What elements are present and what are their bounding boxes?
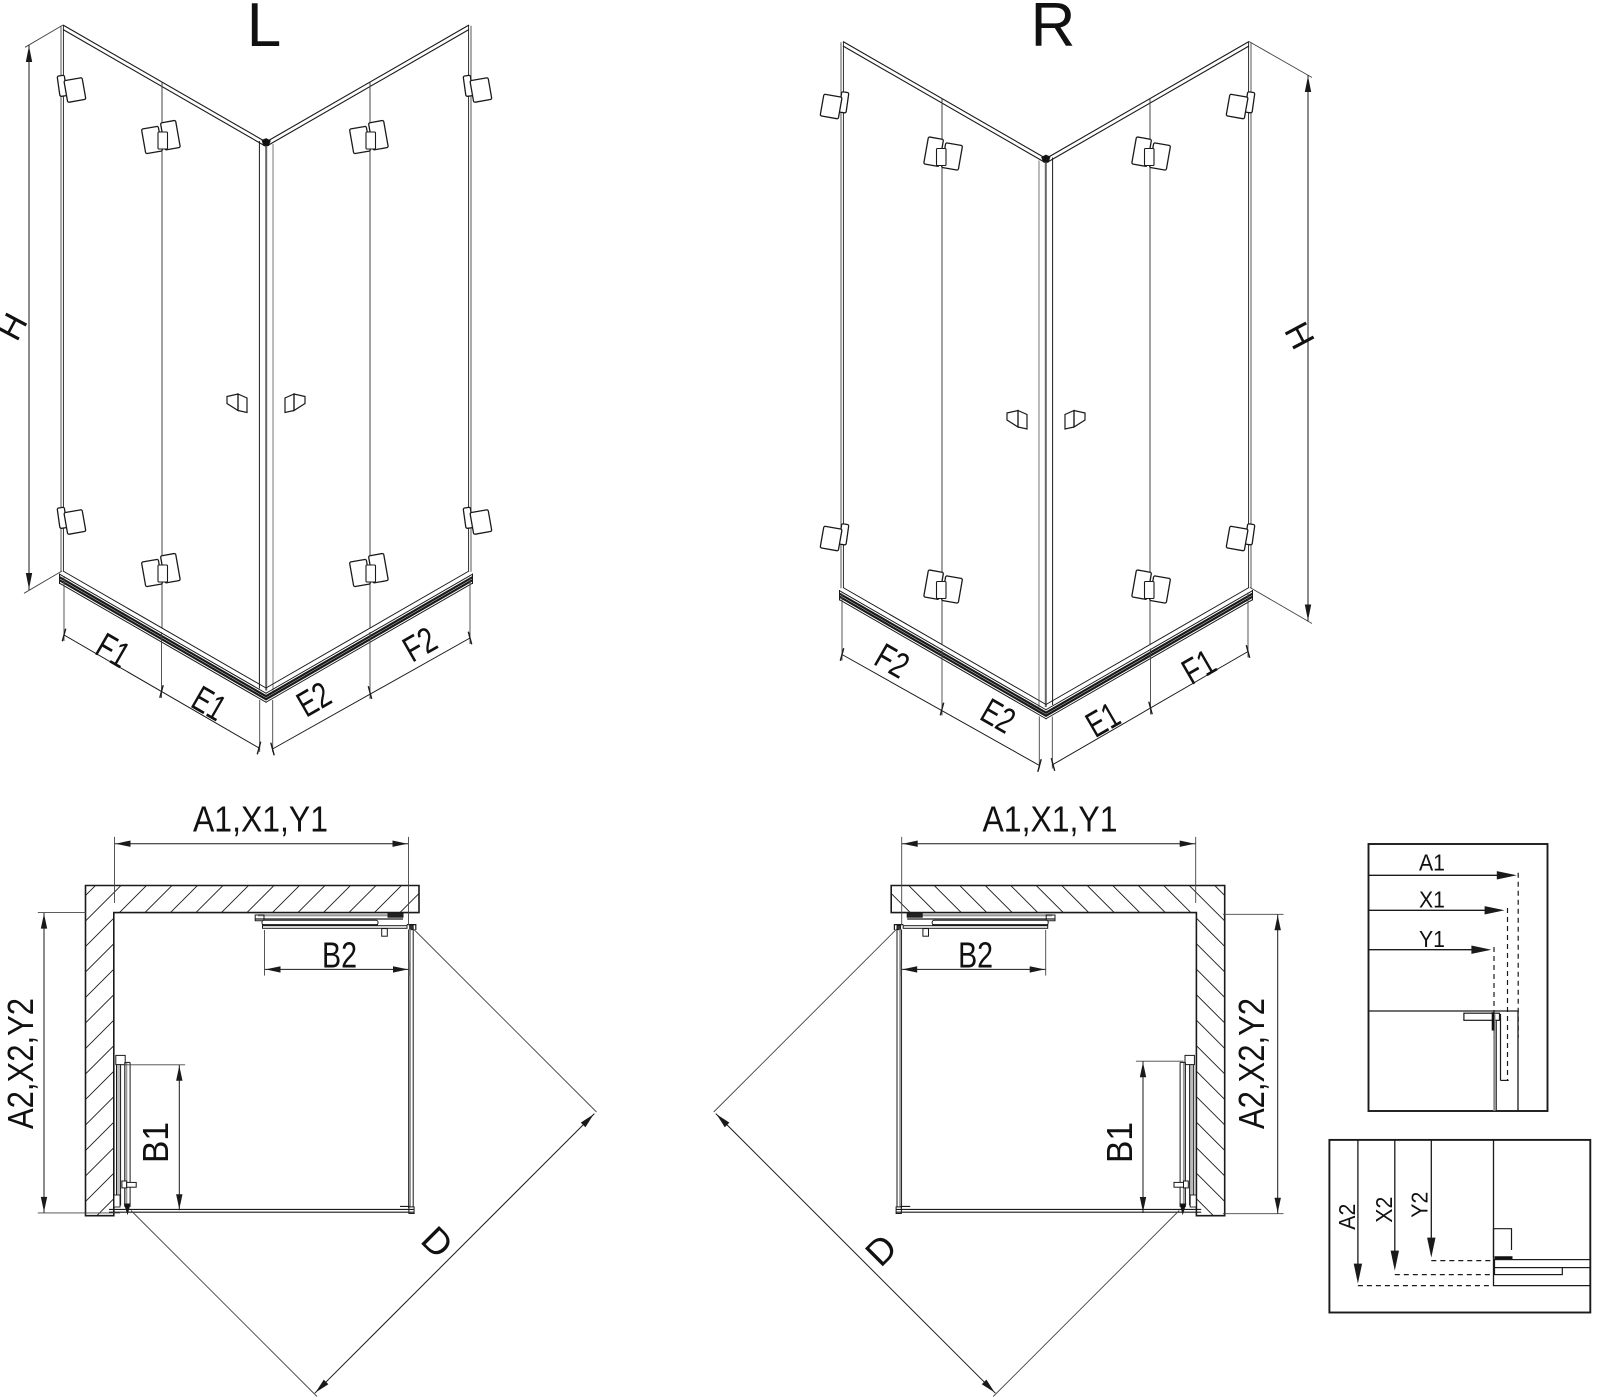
- svg-text:A1,X1,Y1: A1,X1,Y1: [983, 799, 1118, 840]
- svg-text:X2: X2: [1371, 1197, 1397, 1223]
- svg-text:A2,X2,Y2: A2,X2,Y2: [0, 998, 41, 1129]
- svg-text:L: L: [247, 0, 281, 60]
- svg-text:R: R: [1031, 0, 1076, 60]
- svg-text:A1: A1: [1419, 850, 1445, 876]
- svg-text:Y2: Y2: [1407, 1192, 1433, 1218]
- svg-text:A2,X2,Y2: A2,X2,Y2: [1231, 998, 1272, 1129]
- svg-text:X1: X1: [1419, 886, 1445, 912]
- svg-text:B1: B1: [1099, 1122, 1140, 1163]
- svg-text:B1: B1: [135, 1122, 176, 1163]
- svg-text:B2: B2: [322, 934, 357, 975]
- svg-text:A1,X1,Y1: A1,X1,Y1: [193, 799, 328, 840]
- svg-text:Y1: Y1: [1419, 926, 1445, 952]
- svg-text:A2: A2: [1334, 1204, 1360, 1230]
- svg-text:B2: B2: [958, 934, 993, 975]
